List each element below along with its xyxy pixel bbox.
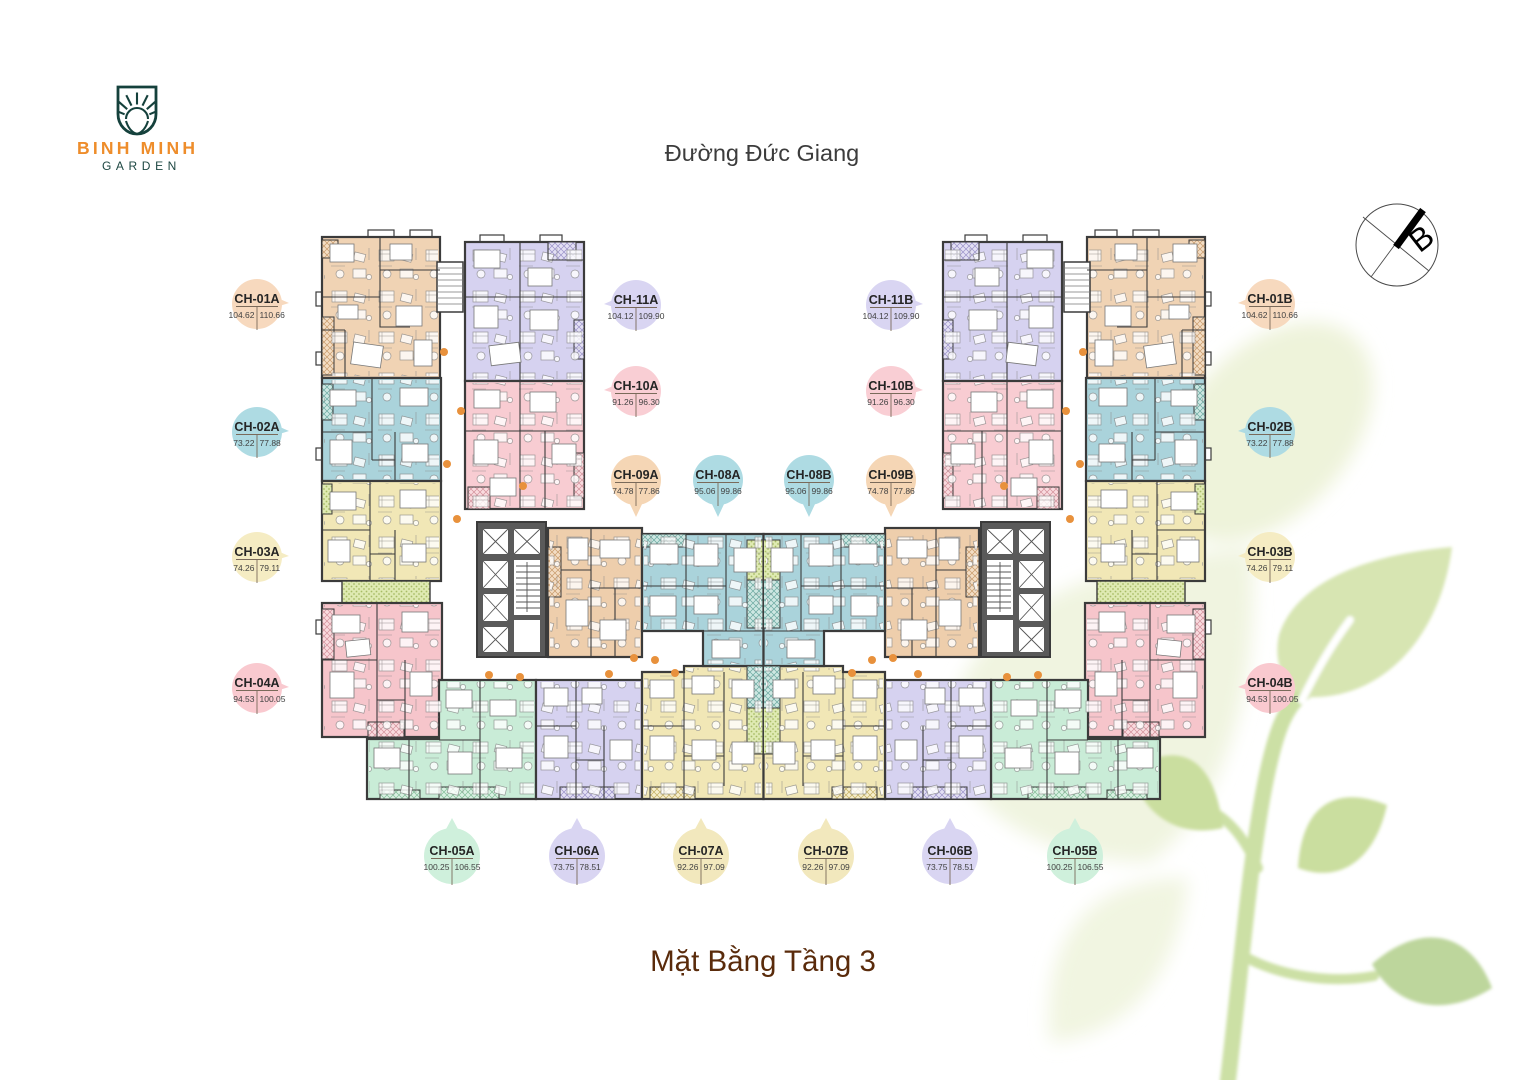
- svg-text:74.26: 74.26: [1246, 563, 1268, 573]
- svg-text:78.51: 78.51: [580, 862, 602, 872]
- svg-text:96.30: 96.30: [639, 397, 661, 407]
- svg-text:CH-06B: CH-06B: [927, 844, 972, 858]
- svg-text:CH-07B: CH-07B: [803, 844, 848, 858]
- svg-text:CH-07A: CH-07A: [678, 844, 723, 858]
- svg-text:78.51: 78.51: [953, 862, 975, 872]
- svg-text:CH-01A: CH-01A: [234, 292, 279, 306]
- svg-text:B: B: [1402, 218, 1441, 260]
- svg-text:73.22: 73.22: [1246, 438, 1268, 448]
- svg-text:91.26: 91.26: [867, 397, 889, 407]
- svg-text:CH-06A: CH-06A: [554, 844, 599, 858]
- svg-text:77.86: 77.86: [639, 486, 661, 496]
- svg-text:92.26: 92.26: [802, 862, 824, 872]
- svg-text:CH-11A: CH-11A: [614, 293, 658, 307]
- svg-text:GARDEN: GARDEN: [102, 159, 181, 173]
- svg-text:91.26: 91.26: [612, 397, 634, 407]
- svg-text:CH-09B: CH-09B: [868, 468, 913, 482]
- svg-text:104.62: 104.62: [1242, 310, 1268, 320]
- svg-text:77.86: 77.86: [894, 486, 916, 496]
- svg-text:CH-01B: CH-01B: [1247, 292, 1292, 306]
- svg-text:Mặt Bằng Tầng 3: Mặt Bằng Tầng 3: [650, 945, 876, 978]
- svg-text:104.62: 104.62: [229, 310, 255, 320]
- svg-text:106.55: 106.55: [455, 862, 481, 872]
- svg-text:95.06: 95.06: [694, 486, 716, 496]
- svg-text:74.78: 74.78: [867, 486, 889, 496]
- svg-text:109.90: 109.90: [639, 311, 665, 321]
- svg-text:104.12: 104.12: [608, 311, 634, 321]
- svg-text:110.66: 110.66: [260, 310, 286, 320]
- svg-text:97.09: 97.09: [829, 862, 851, 872]
- svg-text:CH-11B: CH-11B: [869, 293, 913, 307]
- svg-text:97.09: 97.09: [704, 862, 726, 872]
- svg-text:CH-02B: CH-02B: [1247, 420, 1292, 434]
- svg-text:106.55: 106.55: [1078, 862, 1104, 872]
- svg-text:CH-08B: CH-08B: [786, 468, 831, 482]
- svg-text:79.11: 79.11: [1273, 563, 1294, 573]
- svg-text:CH-03A: CH-03A: [234, 545, 279, 559]
- svg-text:74.78: 74.78: [612, 486, 634, 496]
- svg-text:73.75: 73.75: [553, 862, 575, 872]
- svg-text:79.11: 79.11: [260, 563, 281, 573]
- svg-text:100.25: 100.25: [424, 862, 450, 872]
- svg-text:96.30: 96.30: [894, 397, 916, 407]
- svg-text:BINH MINH: BINH MINH: [77, 138, 198, 158]
- svg-text:95.06: 95.06: [785, 486, 807, 496]
- svg-text:77.88: 77.88: [1273, 438, 1295, 448]
- svg-text:73.22: 73.22: [233, 438, 255, 448]
- svg-text:109.90: 109.90: [894, 311, 920, 321]
- svg-text:99.86: 99.86: [721, 486, 743, 496]
- svg-text:CH-08A: CH-08A: [695, 468, 740, 482]
- svg-text:94.53: 94.53: [233, 694, 255, 704]
- svg-text:77.88: 77.88: [260, 438, 282, 448]
- svg-text:CH-04A: CH-04A: [234, 676, 279, 690]
- svg-text:100.25: 100.25: [1047, 862, 1073, 872]
- svg-text:74.26: 74.26: [233, 563, 255, 573]
- svg-text:CH-04B: CH-04B: [1247, 676, 1292, 690]
- svg-text:CH-05A: CH-05A: [429, 844, 474, 858]
- svg-text:Đường Đức Giang: Đường Đức Giang: [665, 140, 859, 166]
- svg-text:99.86: 99.86: [812, 486, 834, 496]
- svg-text:CH-05B: CH-05B: [1052, 844, 1097, 858]
- svg-text:92.26: 92.26: [677, 862, 699, 872]
- svg-text:100.05: 100.05: [260, 694, 286, 704]
- svg-text:73.75: 73.75: [926, 862, 948, 872]
- svg-text:CH-09A: CH-09A: [613, 468, 658, 482]
- svg-text:94.53: 94.53: [1246, 694, 1268, 704]
- svg-text:CH-10A: CH-10A: [613, 379, 658, 393]
- svg-text:104.12: 104.12: [863, 311, 889, 321]
- svg-text:CH-10B: CH-10B: [868, 379, 913, 393]
- svg-text:100.05: 100.05: [1273, 694, 1299, 704]
- svg-text:CH-02A: CH-02A: [234, 420, 279, 434]
- svg-text:CH-03B: CH-03B: [1247, 545, 1292, 559]
- svg-text:110.66: 110.66: [1273, 310, 1299, 320]
